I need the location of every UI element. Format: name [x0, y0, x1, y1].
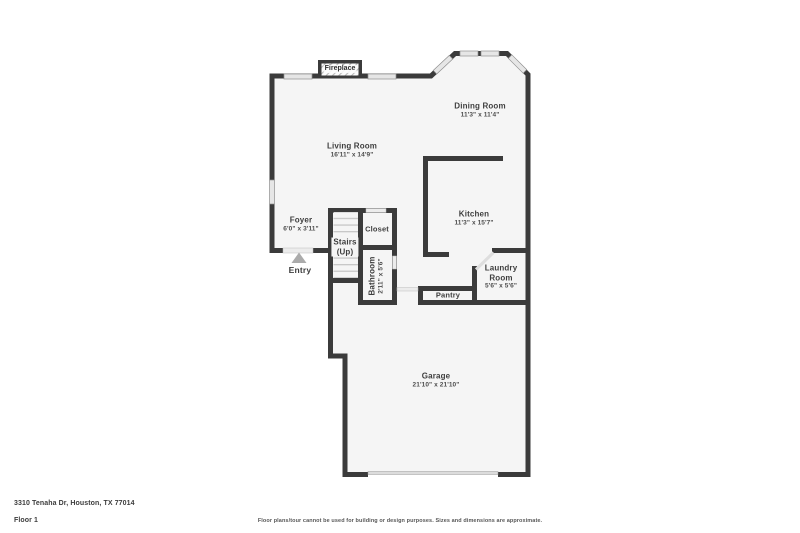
fireplace-label: Fireplace [324, 65, 357, 73]
room-dims: 11'3" x 11'4" [454, 111, 505, 119]
room-label-dining-room: Dining Room 11'3" x 11'4" [454, 101, 505, 119]
wall-kitchen-foot [423, 252, 449, 257]
entry-label: Entry [289, 265, 312, 275]
room-dims: 2'11" x 5'6" [377, 257, 385, 296]
address-text: 3310 Tenaha Dr, Houston, TX 77014 [14, 500, 135, 507]
room-name: Pantry [436, 290, 460, 300]
window [460, 51, 478, 56]
room-label-laundry-room: Laundry Room 5'6" x 5'6" [477, 264, 525, 291]
room-label-closet: Closet [365, 224, 389, 234]
room-dims: 16'11" x 14'9" [327, 151, 377, 159]
floor-plan-page: Fireplace Living Room 16'11" x 14'9" Din… [0, 0, 800, 533]
wall-kitchen-top [423, 156, 503, 161]
room-name: Bathroom [367, 257, 377, 296]
wall-stairs-bottom [328, 278, 363, 283]
bathroom-door-opening [393, 256, 397, 269]
room-name: Living Room [327, 141, 377, 151]
window [270, 180, 275, 204]
room-dims: 11'3" x 15'7" [454, 219, 493, 227]
room-name: Stairs [333, 238, 356, 248]
room-label-stairs: Stairs (Up) [331, 238, 358, 257]
wall-stairs-right [358, 208, 363, 305]
room-name: Closet [365, 224, 389, 234]
room-label-bathroom: Bathroom 2'11" x 5'6" [367, 257, 385, 296]
room-label-foyer: Foyer 6'0" x 3'11" [283, 215, 318, 233]
room-label-pantry: Pantry [436, 290, 460, 300]
floor-plan-drawing [0, 0, 800, 533]
entry-arrow [292, 253, 307, 264]
room-dims: 5'6" x 5'6" [477, 283, 525, 291]
room-name: Laundry Room [477, 264, 525, 283]
room-name: Foyer [283, 215, 318, 225]
window [481, 51, 499, 56]
room-label-living-room: Living Room 16'11" x 14'9" [327, 141, 377, 159]
disclaimer-text: Floor plans/tour cannot be used for buil… [258, 518, 542, 524]
entry-door-opening [283, 248, 313, 253]
room-name: Dining Room [454, 101, 505, 111]
hall-door-opening [397, 288, 418, 292]
wall-laundry-top [492, 248, 530, 253]
wall-kitchen-left [423, 156, 428, 257]
room-dims: 6'0" x 3'11" [283, 225, 318, 233]
room-name: Garage [413, 371, 460, 381]
room-label-garage: Garage 21'10" x 21'10" [413, 371, 460, 389]
entry-arrow-icon [292, 253, 307, 264]
window [284, 74, 312, 79]
wall-garage-top-right [418, 300, 530, 305]
closet-door-opening [366, 209, 386, 213]
garage-door-line [368, 472, 498, 475]
floor-label: Floor 1 [14, 517, 38, 524]
room-name: Kitchen [454, 209, 493, 219]
wall-bathroom-bottom [358, 300, 397, 305]
room-label-kitchen: Kitchen 11'3" x 15'7" [454, 209, 493, 227]
room-sub: (Up) [333, 247, 356, 257]
garage-door [368, 472, 498, 480]
room-dims: 21'10" x 21'10" [413, 381, 460, 389]
wall-closet-bottom [358, 245, 397, 250]
window [368, 74, 396, 79]
